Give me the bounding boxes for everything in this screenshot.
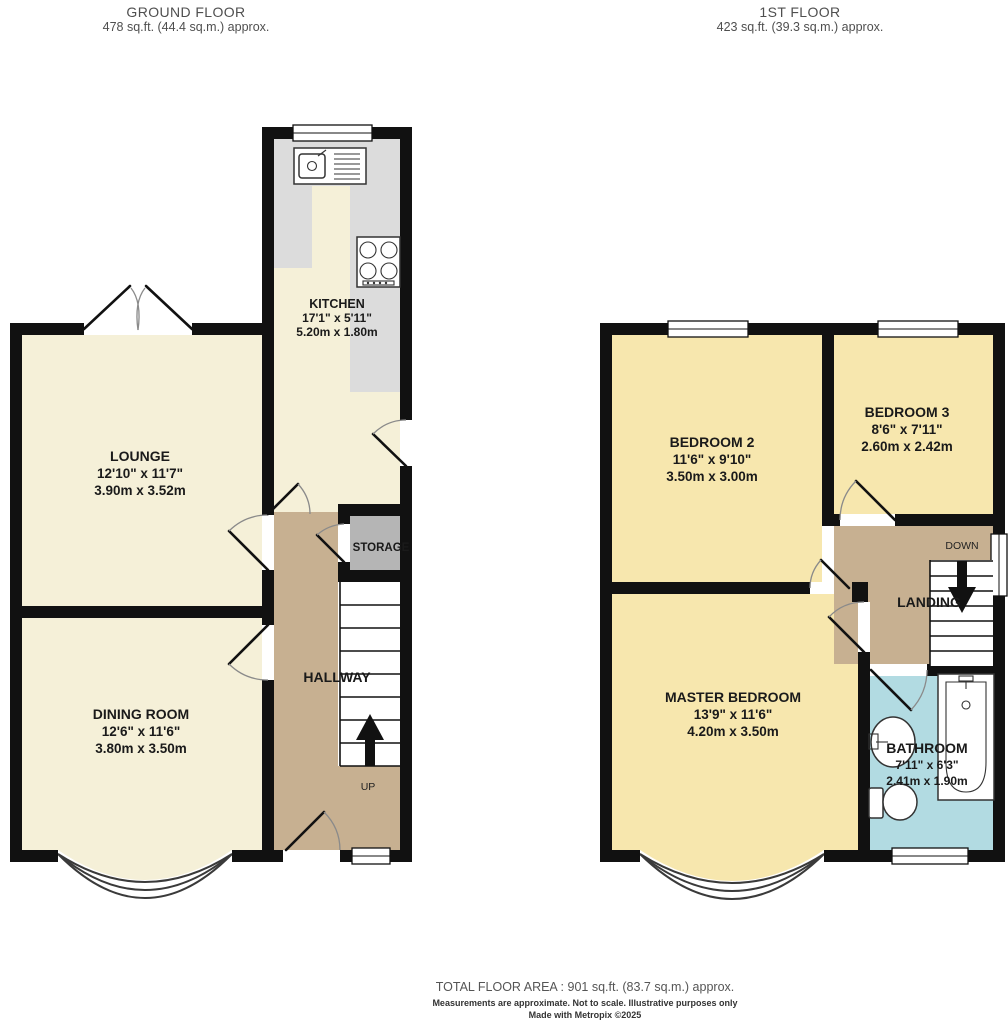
hallway-floor-lower [338, 766, 400, 850]
lounge-dims-imperial: 12'10" x 11'7" [97, 466, 183, 481]
bathroom-dims-metric: 2.41m x 1.90m [886, 774, 967, 788]
master-bedroom-label: MASTER BEDROOM [665, 689, 801, 705]
bedroom2-window [668, 321, 748, 337]
stairs-up-label: UP [361, 781, 376, 793]
bedroom3-label: BEDROOM 3 [865, 404, 950, 420]
ground-floor-title: GROUND FLOOR [126, 4, 245, 20]
dining-room-label: DINING ROOM [93, 706, 189, 722]
first-floor-header: 1ST FLOOR 423 sq.ft. (39.3 sq.m.) approx… [717, 4, 884, 34]
landing-label: LANDING [897, 594, 961, 610]
floorplan-canvas: GROUND FLOOR 478 sq.ft. (44.4 sq.m.) app… [0, 0, 1008, 1024]
kitchen-dims-metric: 5.20m x 1.80m [296, 325, 377, 339]
storage-label: STORAGE [353, 542, 410, 554]
bedroom2-dims-imperial: 11'6" x 9'10" [673, 452, 752, 467]
dining-room-dims-imperial: 12'6" x 11'6" [102, 724, 181, 739]
metropix-credit: Made with Metropix ©2025 [529, 1010, 642, 1020]
kitchen-sink [294, 148, 366, 184]
ground-floor-area: 478 sq.ft. (44.4 sq.m.) approx. [103, 20, 270, 34]
kitchen-window [293, 125, 372, 141]
first-floor-plan: BEDROOM 2 11'6" x 9'10" 3.50m x 3.00m BE… [600, 321, 1007, 899]
ground-floor-header: GROUND FLOOR 478 sq.ft. (44.4 sq.m.) app… [103, 4, 270, 34]
lounge-label: LOUNGE [110, 448, 170, 464]
landing-window [991, 534, 1007, 596]
kitchen-hob [357, 237, 400, 287]
bathroom-label: BATHROOM [886, 740, 967, 756]
master-bedroom-dims-imperial: 13'9" x 11'6" [694, 707, 773, 722]
first-floor-area: 423 sq.ft. (39.3 sq.m.) approx. [717, 20, 884, 34]
lounge-french-doors [84, 286, 192, 330]
bedroom3-dims-metric: 2.60m x 2.42m [861, 439, 953, 454]
bedroom3-dims-imperial: 8'6" x 7'11" [871, 422, 942, 437]
first-floor-title: 1ST FLOOR [759, 4, 840, 20]
hallway-label: HALLWAY [303, 669, 371, 685]
bathroom-dims-imperial: 7'11" x 6'3" [895, 758, 958, 772]
master-bedroom-dims-metric: 4.20m x 3.50m [687, 724, 779, 739]
disclaimer: Measurements are approximate. Not to sca… [432, 998, 737, 1008]
bedroom3-window [878, 321, 958, 337]
first-floor-stairs [930, 560, 993, 666]
stairs-down-label: DOWN [945, 540, 978, 552]
dining-room-dims-metric: 3.80m x 3.50m [95, 741, 187, 756]
footer: TOTAL FLOOR AREA : 901 sq.ft. (83.7 sq.m… [432, 980, 737, 1020]
master-bedroom-floor [612, 594, 858, 850]
hallway-front-window [352, 848, 390, 864]
total-floor-area: TOTAL FLOOR AREA : 901 sq.ft. (83.7 sq.m… [436, 980, 735, 994]
toilet [869, 784, 917, 820]
bedroom2-dims-metric: 3.50m x 3.00m [666, 469, 758, 484]
kitchen-dims-imperial: 17'1" x 5'11" [302, 311, 372, 325]
ground-floor-plan: KITCHEN 17'1" x 5'11" 5.20m x 1.80m LOUN… [10, 125, 412, 898]
bathroom-window [892, 848, 968, 864]
lounge-dims-metric: 3.90m x 3.52m [94, 483, 186, 498]
bedroom2-label: BEDROOM 2 [670, 434, 755, 450]
master-door-opening [858, 602, 870, 652]
kitchen-label: KITCHEN [309, 297, 365, 311]
